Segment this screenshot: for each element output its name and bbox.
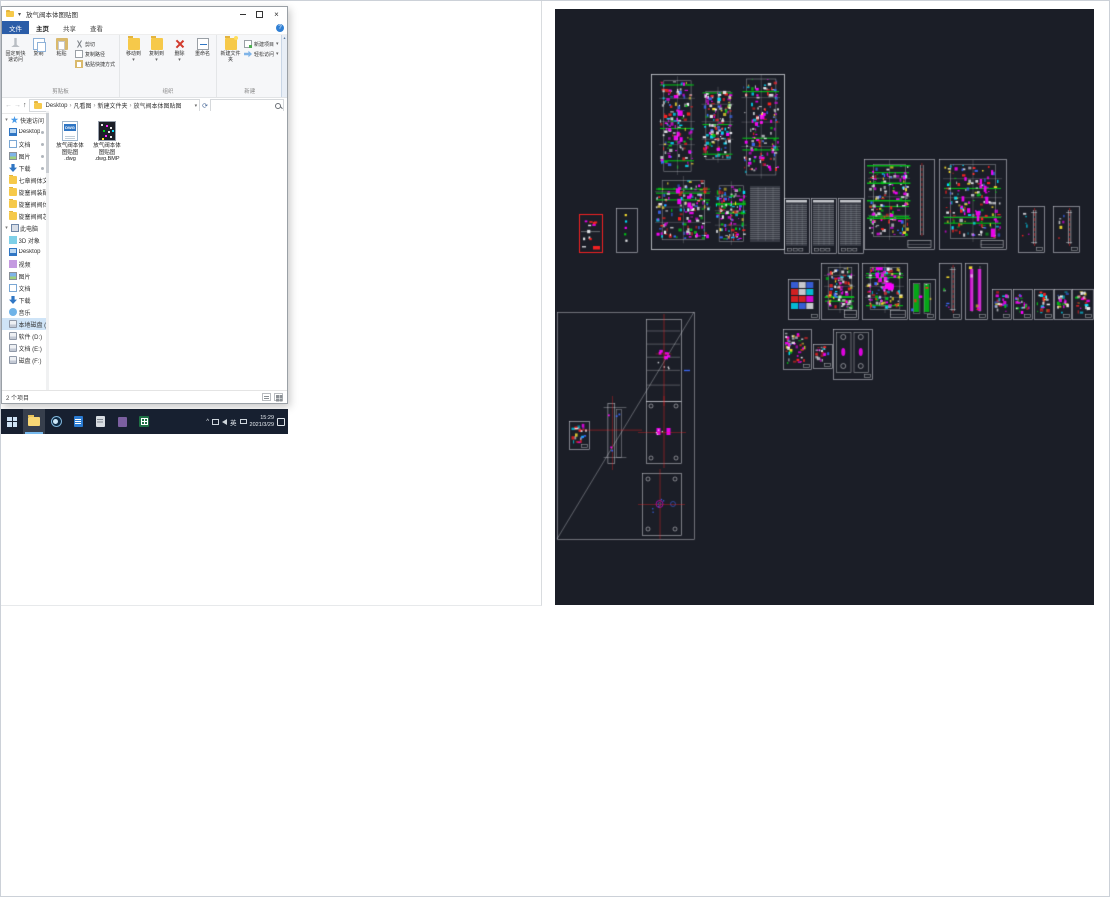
sidebar-item[interactable]: 本地磁盘 (C:) [2, 318, 46, 330]
refresh-button[interactable]: ⟳ [202, 102, 208, 110]
downloads-icon [9, 164, 17, 172]
chevron-down-icon: ▾ [4, 117, 9, 123]
file-name-line: .dwg.BMP [93, 156, 121, 163]
sidebar-item-label: 磁盘 (F:) [19, 356, 42, 365]
scrollbar-thumb[interactable] [46, 113, 49, 173]
ribbon-button-label: 重命名 [195, 51, 210, 57]
title-bar: ▾ 放气阀本体图贴图 × [2, 7, 287, 21]
sidebar-item-label: Desktop [19, 249, 41, 255]
folder-icon [9, 200, 17, 208]
sidebar-item[interactable]: 文档 (E:) [2, 342, 46, 354]
address-folder-icon [34, 103, 42, 109]
disk-icon [9, 344, 17, 352]
ribbon-small-column-clipboard: 剪切复制路径粘贴快捷方式 [73, 36, 117, 69]
sidebar-item[interactable]: 图片 [2, 270, 46, 282]
breadcrumb-item[interactable]: 新建文件夹 [98, 101, 128, 110]
move-to-icon [128, 38, 140, 50]
sidebar-item-label: 旋塞阀装配 [19, 188, 47, 197]
window-controls: × [234, 7, 285, 21]
disk-icon [9, 320, 17, 328]
sidebar-item[interactable]: 3D 对象 [2, 234, 46, 246]
nav-section-label: 快速访问 [20, 116, 44, 125]
crumb-separator-icon: › [70, 103, 72, 109]
file-name: 放气阀本体图贴图.dwg.BMP [93, 143, 121, 163]
taskbar-app-browser[interactable] [45, 409, 67, 434]
sidebar-item-label: 旋塞阀阀体 [19, 200, 47, 209]
search-input[interactable] [211, 100, 283, 111]
this-pc-icon [11, 224, 19, 232]
taskbar-app-word-doc[interactable] [67, 409, 89, 434]
cad-preview-canvas [555, 9, 1094, 605]
file-list-area: DWG放气阀本体图贴图.dwg放气阀本体图贴图.dwg.BMP [49, 111, 287, 391]
sidebar-item[interactable]: 旋塞阀阀体 [2, 198, 46, 210]
sidebar-item[interactable]: Desktop [2, 126, 46, 138]
sidebar-item[interactable]: 音乐 [2, 306, 46, 318]
file-item-bmp[interactable]: 放气阀本体图贴图.dwg.BMP [92, 121, 122, 163]
downloads-icon [9, 296, 17, 304]
tab-view[interactable]: 查看 [83, 21, 110, 34]
excel-icon [139, 416, 149, 427]
explorer-main: ▾快速访问Desktop文档图片下载七章阀体文件夹旋塞阀装配旋塞阀阀体旋塞阀阀芯… [2, 111, 287, 391]
sidebar-item-label: 本地磁盘 (C:) [19, 320, 47, 329]
app-gray-icon [96, 416, 105, 427]
sidebar-item-label: 视频 [19, 260, 31, 269]
sidebar-item-label: 图片 [19, 152, 31, 161]
ribbon-group-buttons-new: 新建文件夹新建项目▾轻松访问▾ [219, 36, 281, 86]
sidebar-item[interactable]: 下载 [2, 162, 46, 174]
sidebar-item[interactable]: 旋塞阀阀芯加工 [2, 210, 46, 222]
search-icon [275, 103, 281, 109]
ribbon-button-easy-access[interactable]: 轻松访问▾ [242, 49, 281, 59]
sidebar-item[interactable]: 文档 [2, 138, 46, 150]
new-folder-icon [225, 38, 237, 50]
sidebar-item-label: 文档 (E:) [19, 344, 42, 353]
copy-icon [33, 38, 45, 50]
ribbon-button-label: 剪切 [85, 41, 95, 48]
view-toggles [262, 393, 283, 401]
pictures-icon [9, 272, 17, 280]
taskbar-apps [1, 409, 155, 434]
minimize-button[interactable] [234, 7, 251, 21]
file-item-dwg[interactable]: DWG放气阀本体图贴图.dwg [55, 121, 85, 163]
taskbar-app-app-gray[interactable] [89, 409, 111, 434]
sidebar-item-label: 下载 [19, 296, 31, 305]
address-dropdown-icon[interactable]: ▾ [195, 103, 198, 109]
word-doc-icon [74, 416, 83, 427]
pin-icon [41, 155, 44, 158]
folder-icon [6, 11, 14, 17]
nav-section-this-pc[interactable]: ▾此电脑 [2, 222, 46, 234]
ribbon-button-paste-shortcut[interactable]: 粘贴快捷方式 [73, 59, 117, 69]
new-item-icon [244, 40, 252, 48]
sidebar-item[interactable]: 下载 [2, 294, 46, 306]
pin-to-quick-access-icon [10, 38, 22, 50]
ribbon-button-move-to[interactable]: 移动到▾ [122, 36, 145, 65]
ribbon-button-label: 新建项目 [254, 41, 274, 48]
file-name: 放气阀本体图贴图.dwg [56, 143, 84, 163]
ribbon-button-new-item[interactable]: 新建项目▾ [242, 39, 281, 49]
sidebar-item-label: Desktop [19, 129, 40, 135]
pin-icon [41, 167, 44, 170]
pin-icon [41, 131, 44, 134]
maximize-icon [256, 11, 263, 18]
chevron-down-icon: ▾ [4, 225, 9, 231]
back-button[interactable]: ← [5, 102, 12, 109]
ribbon-button-label: 固定到快速访问 [5, 51, 26, 63]
ribbon-small-column-new: 新建项目▾轻松访问▾ [242, 36, 281, 59]
sidebar-item[interactable]: Desktop [2, 246, 46, 258]
cut-icon [75, 40, 83, 48]
folder-3d-icon [9, 236, 17, 244]
sidebar-item[interactable]: 七章阀体文件夹 [2, 174, 46, 186]
folder-icon [9, 212, 17, 220]
sidebar-item-label: 软件 (D:) [19, 332, 43, 341]
file-name-line: .dwg [56, 156, 84, 163]
tab-share[interactable]: 共享 [56, 21, 83, 34]
nav-section-quick-access[interactable]: ▾快速访问 [2, 114, 46, 126]
clock-date: 2021/3/29 [250, 422, 274, 429]
breadcrumb-item[interactable]: 放气阀本体图贴图 [134, 101, 182, 110]
dwg-file-icon: DWG [62, 121, 78, 141]
status-bar: 2 个项目 [2, 390, 287, 403]
ribbon-group-buttons-clipboard: 固定到快速访问复制粘贴剪切复制路径粘贴快捷方式 [4, 36, 117, 86]
sidebar-item[interactable]: 文档 [2, 282, 46, 294]
taskbar: ^ 英 15:29 2021/3/29 [1, 409, 288, 434]
file-name-line: 放气阀本体 [56, 143, 84, 150]
copy-to-icon [151, 38, 163, 50]
sidebar-item-label: 图片 [19, 272, 31, 281]
ribbon-group-label: 组织 [122, 86, 214, 97]
breadcrumb-item[interactable]: 凡看图 [74, 101, 92, 110]
sidebar-item[interactable]: 磁盘 (F:) [2, 354, 46, 366]
display-icon[interactable] [212, 419, 219, 425]
navigation-pane: ▾快速访问Desktop文档图片下载七章阀体文件夹旋塞阀装配旋塞阀阀体旋塞阀阀芯… [2, 111, 46, 391]
ribbon-button-paste[interactable]: 粘贴 [50, 36, 73, 59]
ribbon-group-buttons-organize: 移动到▾复制到▾删除▾重命名 [122, 36, 214, 86]
item-count: 2 个项目 [6, 393, 29, 402]
thumbnail-speckles [101, 124, 103, 126]
quick-access-toolbar-caret-icon[interactable]: ▾ [18, 11, 21, 18]
sidebar-item[interactable]: 图片 [2, 150, 46, 162]
ribbon-button-label: 粘贴 [56, 51, 66, 57]
minimize-icon [240, 14, 246, 15]
sidebar-item-label: 文档 [19, 284, 31, 293]
ribbon-tab-row: 文件主页共享查看? [2, 21, 287, 35]
volume-icon[interactable] [222, 419, 227, 425]
ribbon-group-organize: 移动到▾复制到▾删除▾重命名组织 [120, 35, 217, 97]
sidebar-item-label: 七章阀体文件夹 [19, 176, 47, 185]
caret-down-icon: ▾ [276, 41, 279, 47]
disk-icon [9, 356, 17, 364]
paste-icon [56, 38, 68, 50]
ribbon-button-copy-path[interactable]: 复制路径 [73, 49, 117, 59]
ribbon-button-delete[interactable]: 删除▾ [168, 36, 191, 65]
copy-path-icon [75, 50, 83, 58]
ribbon-button-copy[interactable]: 复制 [27, 36, 50, 59]
documents-icon [9, 140, 17, 148]
file-explorer-window: ▾ 放气阀本体图贴图 × 文件主页共享查看? 固定到快速访问复制粘贴剪切复制路径… [1, 6, 288, 404]
documents-icon [9, 284, 17, 292]
action-center-icon[interactable] [277, 418, 285, 426]
caret-down-icon: ▾ [276, 51, 279, 57]
ribbon-button-pin-to-quick-access[interactable]: 固定到快速访问 [4, 36, 27, 65]
ribbon-group-label: 新建 [219, 86, 281, 97]
sidebar-item-label: 文档 [19, 140, 31, 149]
paste-shortcut-icon [75, 60, 83, 68]
details-view-button[interactable] [262, 393, 271, 401]
close-button[interactable]: × [268, 7, 285, 21]
file-explorer-icon [28, 417, 40, 426]
videos-icon [9, 260, 17, 268]
ribbon-group-new: 新建文件夹新建项目▾轻松访问▾新建 [217, 35, 284, 97]
sidebar-item-label: 下载 [19, 164, 31, 173]
rename-icon [197, 38, 209, 50]
sidebar-item[interactable]: 视频 [2, 258, 46, 270]
delete-icon [174, 38, 186, 50]
forward-button[interactable]: → [14, 102, 21, 109]
desktop-screenshot-region: ▾ 放气阀本体图贴图 × 文件主页共享查看? 固定到快速访问复制粘贴剪切复制路径… [1, 1, 542, 606]
sidebar-item-label: 音乐 [19, 308, 31, 317]
file-name-line: 放气阀本体 [93, 143, 121, 150]
taskbar-app-file-explorer[interactable] [23, 409, 45, 434]
disk-icon [9, 332, 17, 340]
ribbon-button-label: 轻松访问 [254, 51, 274, 58]
easy-access-icon [244, 50, 252, 58]
ribbon-button-label: 复制路径 [85, 51, 105, 58]
help-icon[interactable]: ? [276, 24, 284, 32]
touch-keyboard-icon[interactable] [240, 419, 247, 424]
maximize-button[interactable] [251, 7, 268, 21]
ribbon-button-label: 粘贴快捷方式 [85, 61, 115, 68]
sidebar-item-label: 旋塞阀阀芯加工 [19, 212, 47, 221]
sidebar-item[interactable]: 软件 (D:) [2, 330, 46, 342]
taskbar-app-excel[interactable] [133, 409, 155, 434]
ribbon-scrollbar[interactable]: ▴ [281, 35, 287, 97]
desktop-icon [9, 128, 17, 136]
sidebar-item-label: 3D 对象 [19, 236, 40, 245]
tab-home[interactable]: 主页 [29, 21, 56, 34]
desktop-icon [9, 248, 17, 256]
taskbar-clock[interactable]: 15:29 2021/3/29 [250, 415, 274, 428]
nav-section-label: 此电脑 [20, 224, 38, 233]
ribbon-group-label: 剪贴板 [4, 86, 117, 97]
taskbar-app-app-purple[interactable] [111, 409, 133, 434]
pictures-icon [9, 152, 17, 160]
caret-down-icon: ▾ [155, 57, 158, 63]
ribbon: 固定到快速访问复制粘贴剪切复制路径粘贴快捷方式剪贴板移动到▾复制到▾删除▾重命名… [2, 35, 287, 98]
ribbon-button-rename[interactable]: 重命名 [191, 36, 214, 59]
scroll-up-icon: ▴ [283, 35, 285, 97]
start-button[interactable] [1, 409, 23, 434]
crumb-separator-icon: › [130, 103, 132, 109]
start-icon [7, 417, 17, 427]
crumb-separator-icon: › [94, 103, 96, 109]
navigation-scrollbar[interactable] [46, 111, 49, 391]
app-purple-icon [118, 417, 127, 427]
window-title: 放气阀本体图贴图 [26, 9, 234, 19]
ribbon-button-copy-to[interactable]: 复制到▾ [145, 36, 168, 65]
bmp-file-icon [98, 121, 116, 141]
ime-indicator[interactable]: 英 [230, 417, 237, 427]
tray-overflow-chevron-icon[interactable]: ^ [206, 419, 209, 425]
cad-preview-panel [555, 9, 1094, 605]
quick-access-icon [11, 116, 19, 124]
tab-file[interactable]: 文件 [2, 21, 29, 34]
dwg-badge: DWG [64, 124, 76, 131]
ribbon-groups: 固定到快速访问复制粘贴剪切复制路径粘贴快捷方式剪贴板移动到▾复制到▾删除▾重命名… [2, 35, 287, 97]
ribbon-group-clipboard: 固定到快速访问复制粘贴剪切复制路径粘贴快捷方式剪贴板 [2, 35, 120, 97]
thumbnail-view-button[interactable] [274, 393, 283, 401]
browser-icon [51, 416, 62, 427]
page-root: ▾ 放气阀本体图贴图 × 文件主页共享查看? 固定到快速访问复制粘贴剪切复制路径… [0, 0, 1110, 897]
folder-icon [9, 188, 17, 196]
system-tray: ^ 英 15:29 2021/3/29 [206, 409, 288, 434]
sidebar-item[interactable]: 旋塞阀装配 [2, 186, 46, 198]
caret-down-icon: ▾ [132, 57, 135, 63]
ribbon-button-cut[interactable]: 剪切 [73, 39, 117, 49]
caret-down-icon: ▾ [178, 57, 181, 63]
ribbon-button-label: 新建文件夹 [220, 51, 241, 63]
music-icon [9, 308, 17, 316]
breadcrumb-items: Desktop›凡看图›新建文件夹›放气阀本体图贴图 [46, 101, 182, 110]
ribbon-button-new-folder[interactable]: 新建文件夹 [219, 36, 242, 65]
pin-icon [41, 143, 44, 146]
up-button[interactable]: ↑ [23, 102, 27, 109]
folder-icon [9, 176, 17, 184]
breadcrumb-item[interactable]: Desktop [46, 103, 68, 109]
